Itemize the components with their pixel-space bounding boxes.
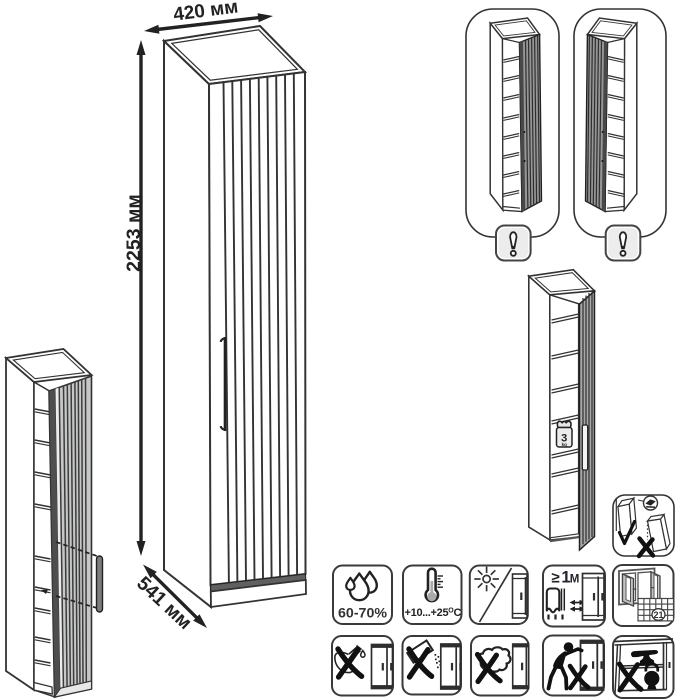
- svg-text:60-70%: 60-70%: [338, 606, 387, 622]
- svg-text:М: М: [570, 574, 580, 586]
- svg-text:+10...+25ОС: +10...+25ОС: [405, 607, 462, 619]
- svg-text:kg: kg: [562, 442, 568, 447]
- svg-text:2253 мм: 2253 мм: [123, 194, 145, 272]
- svg-text:21: 21: [653, 610, 663, 620]
- svg-text:≥: ≥: [551, 570, 559, 587]
